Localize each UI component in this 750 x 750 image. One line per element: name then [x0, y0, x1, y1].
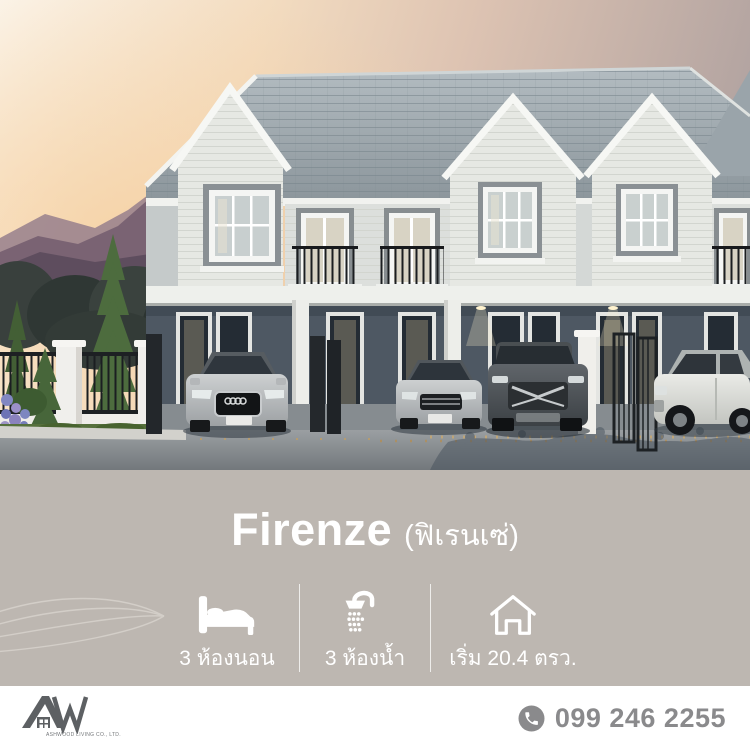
ashwood-logo: ASHWOOD LIVING CO., LTD.	[18, 690, 178, 746]
aw-monogram-icon	[18, 690, 100, 734]
project-title: Firenze(ฟิเรนเซ่)	[0, 504, 750, 558]
feature-bathrooms: 3 ห้องน้ำ	[302, 584, 428, 671]
phone-number: 099 246 2255	[555, 703, 726, 734]
ad-poster: Firenze(ฟิเรนเซ่) 3 ห้องนอน	[0, 0, 750, 750]
company-name: ASHWOOD LIVING CO., LTD.	[46, 732, 178, 738]
feature-divider	[299, 584, 300, 672]
townhouse-scene	[0, 0, 750, 470]
project-rendering	[0, 0, 750, 470]
footer-bar: ASHWOOD LIVING CO., LTD. 099 246 2255	[0, 686, 750, 750]
feature-row: 3 ห้องนอน 3 ห้องน	[0, 584, 750, 672]
feature-area: เริ่ม 20.4 ตรว.	[433, 584, 593, 671]
feature-bedrooms: 3 ห้องนอน	[157, 584, 297, 671]
contact-phone: 099 246 2255	[518, 686, 726, 750]
feature-label: 3 ห้องน้ำ	[325, 647, 405, 671]
home-icon	[488, 584, 538, 638]
phone-icon	[518, 705, 545, 732]
shower-icon	[342, 584, 388, 638]
project-name-thai: (ฟิเรนเซ่)	[404, 520, 519, 552]
feature-divider	[430, 584, 431, 672]
project-name: Firenze	[231, 504, 392, 555]
info-panel: Firenze(ฟิเรนเซ่) 3 ห้องนอน	[0, 470, 750, 686]
feature-label: เริ่ม 20.4 ตรว.	[449, 647, 576, 671]
feature-label: 3 ห้องนอน	[179, 647, 275, 671]
bed-icon	[198, 584, 256, 638]
